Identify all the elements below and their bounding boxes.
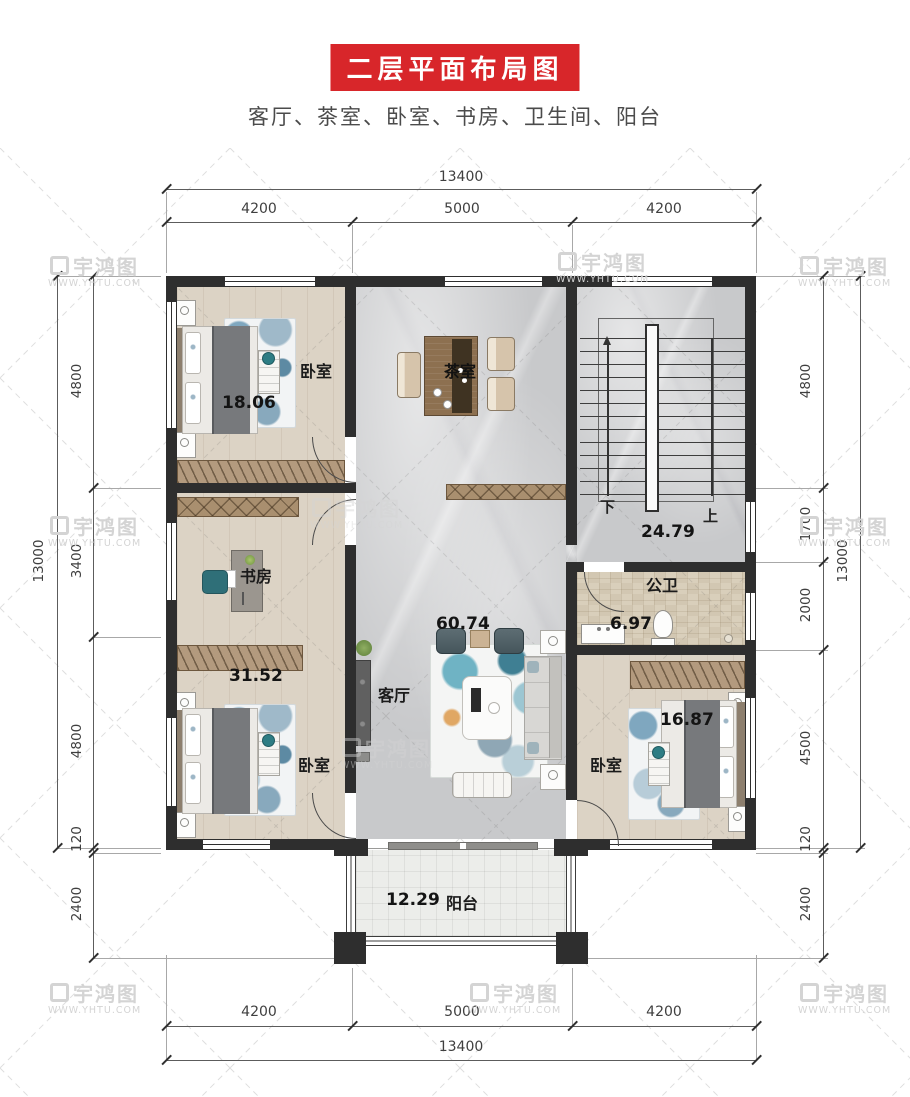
pen — [242, 592, 244, 605]
floor-drain — [724, 634, 733, 643]
tv-bench — [452, 772, 512, 798]
stair-treads-right — [659, 338, 745, 502]
room-label-bedroom-bl: 卧室 — [298, 752, 330, 776]
watermark: 宇鸿图WWW.YHTU.COM — [48, 256, 141, 290]
watermark-logo-icon — [50, 516, 69, 535]
plant — [356, 640, 372, 656]
watermark: 宇鸿图WWW.YHTU.COM — [48, 983, 141, 1017]
wall — [166, 600, 177, 718]
wall — [566, 276, 577, 545]
window — [203, 839, 270, 850]
room-area-study: 31.52 — [229, 666, 283, 686]
witness-line — [756, 955, 757, 1061]
balcony-column — [556, 932, 588, 964]
wall — [334, 839, 368, 856]
tea-chair — [487, 337, 515, 371]
stair-divider — [645, 324, 659, 512]
nightstand — [728, 806, 746, 832]
pillow — [185, 382, 201, 424]
dim-label: 4200 — [634, 201, 694, 217]
dim-line — [166, 189, 756, 190]
balcony-railing — [346, 850, 356, 942]
window — [445, 276, 542, 287]
wall — [166, 428, 177, 523]
page-title: 二层平面布局图 — [330, 44, 579, 91]
dim-line — [823, 276, 824, 958]
dim-label: 4500 — [798, 726, 814, 770]
vase — [262, 352, 275, 365]
wardrobe — [630, 661, 745, 689]
bed-headboard — [737, 702, 745, 806]
dim-line — [166, 222, 756, 223]
page-subtitle: 客厅、茶室、卧室、书房、卫生间、阳台 — [0, 101, 910, 131]
dim-label: 120 — [798, 817, 814, 861]
pillow — [718, 706, 734, 748]
tea-chair — [487, 377, 515, 411]
watermark: 宇鸿图WWW.YHTU.COM — [798, 516, 891, 550]
wall — [166, 276, 177, 302]
pillow — [185, 762, 201, 804]
sofa-pillow — [527, 742, 539, 754]
room-label-bedroom-br: 卧室 — [590, 752, 622, 776]
watermark-logo-icon — [800, 256, 819, 275]
watermark-logo-icon — [470, 983, 489, 1002]
dim-label: 120 — [69, 817, 85, 861]
room-label-balcony: 阳台 — [446, 890, 478, 914]
witness-line — [93, 958, 335, 959]
witness-line — [93, 637, 161, 638]
wall — [166, 839, 203, 850]
coffee-table — [462, 676, 512, 740]
witness-line — [93, 488, 161, 489]
balcony-railing — [566, 850, 576, 942]
room-area-bathroom: 6.97 — [610, 614, 652, 634]
wall — [745, 552, 756, 593]
tea-chair — [397, 352, 421, 398]
vase — [652, 746, 665, 759]
dim-label: 13400 — [426, 169, 496, 185]
stair-up-line — [711, 338, 713, 496]
toilet-bowl — [653, 610, 673, 638]
bed-blanket — [212, 708, 250, 814]
wall — [624, 562, 756, 572]
room-label-tea-room: 茶室 — [444, 358, 476, 382]
watermark-logo-icon — [50, 256, 69, 275]
dim-line — [166, 1060, 756, 1061]
dim-label: 4800 — [69, 359, 85, 403]
witness-line — [756, 488, 828, 489]
wall — [745, 276, 756, 502]
window — [166, 718, 177, 806]
room-area-stairwell: 24.79 — [641, 522, 695, 542]
window — [745, 502, 756, 552]
room-area-living: 60.74 — [436, 614, 490, 634]
tv-cabinet — [354, 660, 371, 746]
passage-floor — [566, 545, 577, 562]
balcony-railing — [346, 936, 576, 946]
stair-treads-left — [580, 338, 646, 502]
witness-line — [166, 192, 167, 273]
witness-line — [572, 968, 573, 1027]
wall — [166, 483, 356, 493]
watermark-logo-icon — [800, 983, 819, 1002]
watermark: 宇鸿图WWW.YHTU.COM — [340, 738, 433, 772]
window — [745, 593, 756, 640]
watermark-logo-icon — [312, 498, 331, 517]
witness-line — [580, 958, 828, 959]
dim-label: 13400 — [426, 1039, 496, 1055]
window — [225, 276, 315, 287]
balcony-column — [334, 932, 366, 964]
witness-line — [93, 853, 161, 854]
dim-label: 4200 — [229, 1004, 289, 1020]
room-label-bedroom-tl: 卧室 — [300, 358, 332, 382]
hall-console — [446, 484, 566, 500]
witness-line — [352, 225, 353, 273]
side-table — [540, 764, 566, 790]
window — [610, 839, 712, 850]
armchair — [494, 628, 524, 654]
witness-line — [756, 650, 828, 651]
window — [166, 523, 177, 600]
dim-label: 2000 — [798, 583, 814, 627]
watermark-logo-icon — [558, 252, 577, 271]
witness-line — [756, 562, 828, 563]
watermark: 宇鸿图WWW.YHTU.COM — [310, 498, 403, 532]
dim-line — [93, 276, 94, 958]
watermark: 宇鸿图WWW.YHTU.COM — [798, 256, 891, 290]
witness-line — [352, 968, 353, 1027]
watermark: 宇鸿图WWW.YHTU.COM — [556, 252, 649, 286]
stair-arrow-icon — [603, 336, 611, 345]
dim-label: 13000 — [31, 539, 47, 583]
wall — [566, 562, 584, 572]
pillow — [185, 714, 201, 756]
pillow — [185, 332, 201, 374]
sliding-door — [388, 842, 538, 850]
pillow — [718, 756, 734, 798]
desk-chair — [202, 570, 228, 594]
sofa-back — [549, 658, 561, 758]
room-area-balcony: 12.29 — [386, 890, 440, 910]
dim-label: 4800 — [798, 359, 814, 403]
wall — [712, 839, 756, 850]
wall — [345, 287, 356, 437]
remote — [471, 688, 481, 712]
wall — [566, 645, 756, 655]
watermark-logo-icon — [342, 738, 361, 757]
watermark: 宇鸿图WWW.YHTU.COM — [468, 983, 561, 1017]
vase — [262, 734, 275, 747]
dim-line — [57, 276, 58, 848]
watermark-logo-icon — [800, 516, 819, 535]
watermark: 宇鸿图WWW.YHTU.COM — [798, 983, 891, 1017]
room-label-bathroom: 公卫 — [646, 572, 678, 596]
dim-label: 4200 — [634, 1004, 694, 1020]
side-table — [540, 630, 566, 654]
room-label-study: 书房 — [240, 563, 272, 587]
witness-line — [166, 955, 167, 1061]
dim-line — [166, 1026, 756, 1027]
tea-cup — [443, 400, 452, 409]
dim-label: 2400 — [798, 882, 814, 926]
window — [166, 302, 177, 428]
bed-blanket — [212, 326, 250, 434]
stair-up-label: 上 — [703, 505, 718, 526]
wall — [270, 839, 334, 850]
stair-down-label: 下 — [600, 496, 615, 517]
window — [745, 698, 756, 798]
stair-down-line — [607, 344, 609, 496]
room-area-bedroom-tl: 18.06 — [222, 393, 276, 413]
dim-line — [860, 276, 861, 848]
dim-label: 4800 — [69, 719, 85, 763]
witness-line — [756, 853, 828, 854]
dim-label: 4200 — [229, 201, 289, 217]
wall — [315, 276, 445, 287]
sofa-pillow — [527, 661, 539, 673]
watermark: 宇鸿图WWW.YHTU.COM — [48, 516, 141, 550]
dim-label: 5000 — [432, 201, 492, 217]
plate — [488, 702, 500, 714]
dim-label: 2400 — [69, 882, 85, 926]
tea-cup — [433, 388, 442, 397]
faucet — [597, 627, 601, 631]
room-area-bedroom-br: 16.87 — [660, 710, 714, 730]
watermark-logo-icon — [50, 983, 69, 1002]
study-cabinet — [177, 497, 299, 517]
witness-line — [756, 192, 757, 273]
room-label-living: 客厅 — [378, 682, 410, 706]
wall — [566, 562, 577, 800]
